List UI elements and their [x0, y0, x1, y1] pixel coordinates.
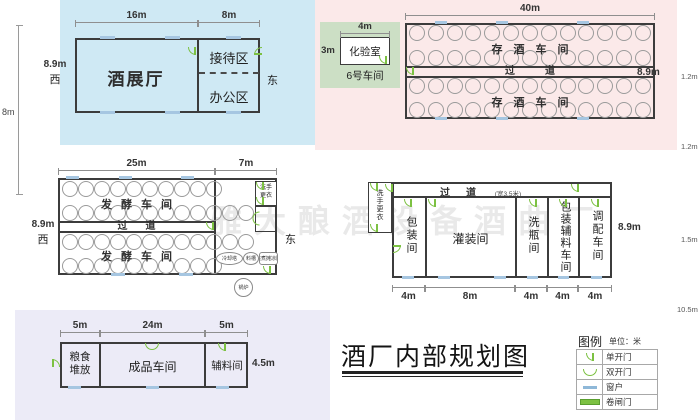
legend-symbol-single-door: [576, 349, 602, 364]
finished-dim-5m-right: 5m: [205, 332, 248, 333]
window: [591, 276, 602, 279]
single-door-icon: [256, 197, 264, 205]
window: [402, 276, 414, 279]
tank-row: [62, 182, 212, 196]
fermentation-dim-left: 8.9m: [28, 219, 58, 230]
finished-dim-24m: 24m: [100, 332, 205, 333]
edge-dim-1: 1.2m: [681, 72, 698, 81]
window: [494, 276, 506, 279]
dim-label: 25m: [126, 158, 146, 169]
corridor-text: 过道: [440, 188, 492, 199]
finished-dim-right: 4.5m: [252, 358, 275, 369]
single-door-icon: [263, 266, 271, 274]
edge-dim-2: 1.2m: [681, 142, 698, 151]
dim-label: 16m: [126, 10, 146, 21]
dim-label: 5m: [73, 320, 87, 331]
title-underline-thin: [342, 376, 523, 377]
exhibition-dim-left: 8.9m: [38, 59, 72, 70]
window: [111, 273, 125, 276]
area-label-workshop6: 6号车间: [333, 68, 397, 83]
exhibition-dim-16m: 16m: [75, 22, 198, 23]
bottling-wash-label: 洗手更衣: [374, 189, 384, 221]
single-door-icon: [586, 353, 594, 361]
dim-label: 8m: [222, 10, 236, 21]
window-icon: [583, 386, 597, 389]
single-door-icon: [406, 67, 414, 75]
window: [226, 111, 241, 114]
corridor-label-bottling: 过道 (宽3.5米): [440, 184, 521, 199]
window: [438, 276, 450, 279]
legend-label-window: 窗户: [602, 379, 657, 394]
bottling-dim-3: 4m: [515, 287, 547, 288]
dim-label: 24m: [142, 320, 162, 331]
steaming-area-label: 蒸煮摊凉区: [259, 255, 278, 262]
window: [435, 21, 447, 24]
window: [68, 386, 81, 389]
room-label-office: 办公区: [199, 87, 259, 106]
window: [216, 386, 229, 389]
dim-label: 8m: [463, 291, 477, 302]
bottling-dim-right: 8.9m: [618, 222, 641, 233]
room-label-reception: 接待区: [199, 48, 259, 67]
exhibition-dim-8m: 8m: [198, 22, 260, 23]
legend-label-roller-door: 卷闸门: [602, 394, 657, 409]
window: [179, 273, 193, 276]
west-label: 西: [38, 71, 72, 87]
room-label-bottle-washing: 洗瓶间: [525, 216, 541, 255]
window: [100, 111, 115, 114]
window: [496, 117, 508, 120]
legend-label-double-door: 双开门: [602, 364, 657, 379]
room-label-blending: 调配车间: [589, 210, 605, 262]
single-door-icon: [529, 199, 537, 207]
material-hopper-label: 料槽: [246, 255, 256, 262]
dim-label: 40m: [520, 3, 540, 14]
edge-dim-3: 1.5m: [681, 235, 698, 244]
window: [577, 117, 589, 120]
window: [165, 36, 180, 39]
storage-dim-right: 8.9m: [637, 67, 660, 78]
room-label-storage-top: 存酒车间: [405, 41, 655, 57]
lab-dim-4m: 4m: [340, 33, 390, 34]
window: [66, 176, 79, 179]
edge-dim-4: 10.5m: [677, 305, 698, 314]
tank-row: [62, 235, 212, 249]
single-door-icon: [254, 47, 262, 55]
single-door-icon: [428, 199, 436, 207]
bottling-dim-4: 4m: [547, 287, 578, 288]
tank-row: [409, 79, 651, 93]
single-door-icon: [404, 199, 412, 207]
tank-row: [409, 26, 651, 40]
dim-label: 4m: [524, 291, 538, 302]
legend-symbol-roller-door: [576, 394, 602, 409]
cooling-tower: 冷却塔: [216, 252, 243, 265]
outer-height-dim-label: 8m: [2, 107, 15, 117]
window: [577, 21, 589, 24]
dim-label: 4m: [358, 21, 372, 32]
roller-door-icon: [580, 399, 600, 405]
double-door-icon: [583, 369, 597, 376]
window: [119, 176, 132, 179]
corridor-label-fermentation: 过道: [58, 221, 215, 232]
outer-height-dim-line: [18, 25, 19, 195]
room-label-storage-bottom: 存酒车间: [405, 94, 655, 110]
double-door-icon: [253, 212, 260, 226]
room-label-filling: 灌装间: [427, 230, 514, 247]
room-label-fermentation-bottom: 发酵车间: [58, 248, 215, 264]
page-title: 酒厂内部规划图: [341, 337, 530, 373]
single-door-icon: [188, 47, 196, 55]
legend-table: 单开门 双开门 窗户 卷闸门: [576, 349, 658, 410]
dim-label: 4m: [588, 291, 602, 302]
single-door-icon: [256, 182, 264, 190]
legend-symbol-double-door: [576, 364, 602, 379]
west-label-2: 西: [28, 231, 58, 247]
window: [527, 276, 538, 279]
material-hopper: 料槽: [243, 252, 259, 265]
grain-line2: 堆放: [70, 364, 91, 376]
dim-label: 4m: [401, 291, 415, 302]
bottling-dim-5: 4m: [578, 287, 612, 288]
single-door-icon: [206, 222, 214, 230]
fermentation-dim-7m: 7m: [215, 170, 277, 171]
single-door-icon: [571, 184, 579, 192]
window: [435, 117, 447, 120]
single-door-icon: [559, 199, 567, 207]
room-label-fermentation-top: 发酵车间: [58, 196, 215, 212]
title-underline-thick: [342, 371, 523, 374]
single-door-icon: [218, 343, 226, 351]
single-door-icon: [591, 199, 599, 207]
window: [165, 111, 180, 114]
grain-line1: 粮食: [70, 351, 91, 363]
corridor-label-storage: 过道: [405, 66, 655, 77]
boiler-label: 锅炉: [238, 284, 248, 291]
window: [100, 36, 115, 39]
room-label-aux: 辅料间: [206, 358, 248, 373]
dim-label: 7m: [239, 158, 253, 169]
east-label-2: 东: [285, 231, 296, 247]
single-door-icon: [393, 245, 401, 253]
dim-label: 4m: [555, 291, 569, 302]
legend-unit: 单位：米: [609, 336, 641, 347]
single-door-icon: [379, 56, 387, 64]
bottling-divider-2: [515, 198, 517, 276]
floor-plan-canvas: 雅大酿酒设备酒曲厂 8m 16m 8m 酒展厅 接待区 办公区 8.9m 西 东…: [0, 0, 700, 420]
bottling-divider-4: [578, 198, 580, 276]
bottling-divider-3: [547, 198, 549, 276]
finished-dim-5m-left: 5m: [60, 332, 100, 333]
legend-title: 图例: [578, 333, 602, 350]
room-label-product: 成品车间: [101, 358, 204, 375]
east-label: 东: [267, 72, 278, 88]
dim-label: 5m: [219, 320, 233, 331]
single-door-icon: [385, 184, 393, 192]
double-door-icon: [145, 343, 159, 350]
room-label-packaging: 包装间: [403, 216, 419, 255]
fermentation-dim-25m: 25m: [58, 170, 215, 171]
room-label-packaging-materials: 包装辅料车间: [557, 201, 573, 273]
single-door-icon: [370, 224, 378, 232]
bottling-dim-2: 8m: [425, 287, 515, 288]
window: [558, 276, 569, 279]
legend-symbol-window: [576, 379, 602, 394]
steaming-area: 蒸煮摊凉区: [259, 252, 278, 265]
boiler: 锅炉: [234, 278, 253, 297]
single-door-icon: [370, 183, 378, 191]
corridor-note: (宽3.5米): [495, 191, 521, 198]
storage-dim-40m: 40m: [405, 15, 655, 16]
lab-dim-3m: 3m: [318, 45, 338, 56]
legend-label-single-door: 单开门: [602, 349, 657, 364]
room-label-grain: 粮食 堆放: [61, 351, 99, 377]
cooling-tower-label: 冷却塔: [222, 255, 237, 262]
window: [146, 386, 159, 389]
room-label-hall: 酒展厅: [75, 65, 197, 90]
window: [496, 21, 508, 24]
single-door-icon: [52, 359, 60, 367]
bottling-dim-1: 4m: [392, 287, 425, 288]
reception-office-divider: [199, 72, 259, 74]
window: [181, 176, 194, 179]
window: [226, 36, 241, 39]
